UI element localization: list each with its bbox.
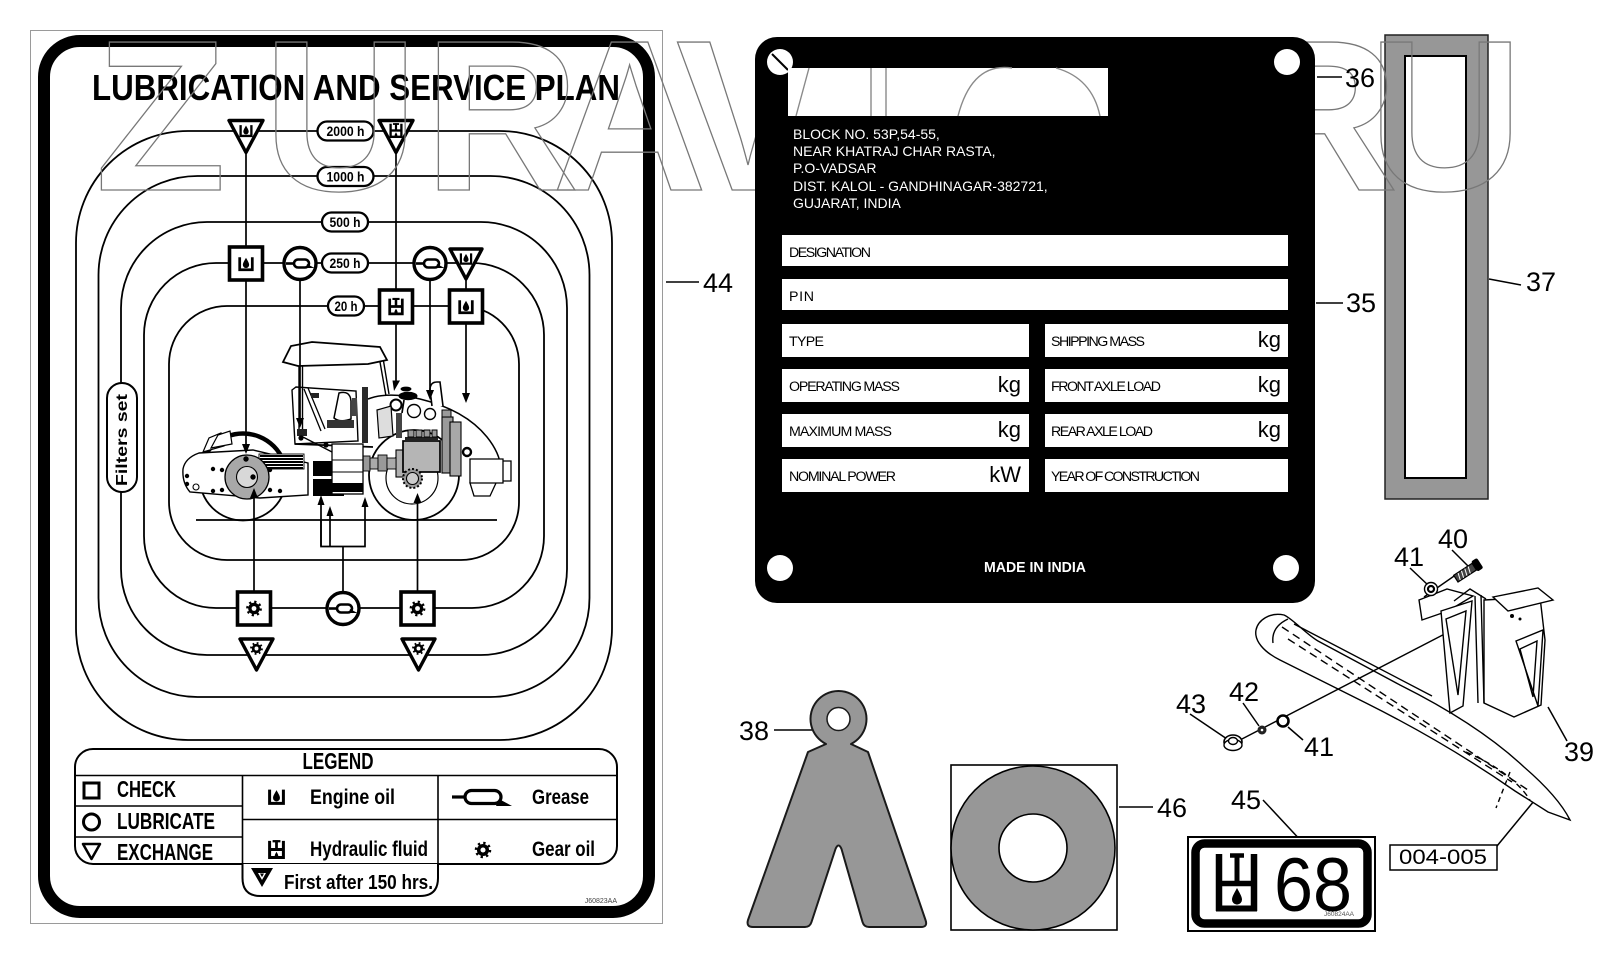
svg-text:First after 150 hrs.: First after 150 hrs. — [284, 872, 433, 894]
svg-text:kg: kg — [998, 417, 1021, 442]
svg-text:CHECK: CHECK — [117, 776, 176, 802]
svg-text:YEAR OF CONSTRUCTION: YEAR OF CONSTRUCTION — [1051, 469, 1200, 485]
svg-text:TYPE: TYPE — [789, 334, 824, 350]
svg-text:NOMINAL POWER: NOMINAL POWER — [789, 469, 896, 485]
svg-text:Gear oil: Gear oil — [532, 838, 595, 861]
svg-text:kg: kg — [1258, 417, 1281, 442]
svg-text:LUBRICATE: LUBRICATE — [117, 808, 215, 834]
svg-text:39: 39 — [1564, 737, 1594, 767]
svg-text:36: 36 — [1345, 63, 1375, 93]
svg-text:MADE IN INDIA: MADE IN INDIA — [984, 559, 1086, 576]
svg-text:Engine oil: Engine oil — [310, 786, 395, 809]
svg-text:MAXIMUM MASS: MAXIMUM MASS — [789, 424, 892, 440]
svg-text:44: 44 — [703, 268, 733, 298]
svg-text:kW: kW — [989, 462, 1021, 487]
svg-text:P.O-VADSAR: P.O-VADSAR — [793, 160, 877, 176]
svg-text:41: 41 — [1394, 542, 1424, 572]
svg-text:46: 46 — [1157, 793, 1187, 823]
svg-text:LEGEND: LEGEND — [303, 748, 374, 774]
svg-text:37: 37 — [1526, 267, 1556, 297]
svg-text:PIN: PIN — [789, 289, 814, 305]
svg-text:NEAR KHATRAJ CHAR RASTA,: NEAR KHATRAJ CHAR RASTA, — [793, 143, 996, 159]
svg-text:42: 42 — [1229, 677, 1259, 707]
svg-text:DIST. KALOL - GANDHINAGAR-3827: DIST. KALOL - GANDHINAGAR-382721, — [793, 178, 1048, 194]
svg-text:41: 41 — [1304, 732, 1334, 762]
svg-text:SHIPPING MASS: SHIPPING MASS — [1051, 334, 1145, 350]
svg-text:REAR AXLE LOAD: REAR AXLE LOAD — [1051, 424, 1153, 440]
svg-text:EXCHANGE: EXCHANGE — [117, 839, 213, 865]
svg-text:J60824AA: J60824AA — [1324, 911, 1355, 918]
svg-text:kg: kg — [998, 372, 1021, 397]
svg-text:U: U — [1368, 0, 1523, 236]
svg-text:Z: Z — [95, 0, 226, 236]
svg-text:45: 45 — [1231, 785, 1261, 815]
svg-text:DESIGNATION: DESIGNATION — [789, 245, 871, 261]
svg-text:35: 35 — [1346, 288, 1376, 318]
svg-text:Grease: Grease — [532, 786, 589, 809]
svg-text:40: 40 — [1438, 524, 1468, 554]
svg-text:38: 38 — [739, 716, 769, 746]
svg-text:J60823AA: J60823AA — [585, 898, 618, 905]
svg-text:Hydraulic fluid: Hydraulic fluid — [310, 838, 428, 861]
svg-text:250 h: 250 h — [330, 256, 361, 271]
svg-text:kg: kg — [1258, 327, 1281, 352]
svg-text:Filters set: Filters set — [114, 394, 131, 486]
svg-text:GUJARAT, INDIA: GUJARAT, INDIA — [793, 195, 902, 211]
svg-text:kg: kg — [1258, 372, 1281, 397]
svg-text:FRONT AXLE LOAD: FRONT AXLE LOAD — [1051, 379, 1161, 395]
svg-text:BLOCK NO. 53P,54-55,: BLOCK NO. 53P,54-55, — [793, 126, 940, 142]
svg-text:004-005: 004-005 — [1399, 846, 1487, 869]
svg-text:20 h: 20 h — [335, 299, 358, 314]
svg-text:U: U — [263, 0, 418, 236]
svg-text:OPERATING MASS: OPERATING MASS — [789, 379, 900, 395]
